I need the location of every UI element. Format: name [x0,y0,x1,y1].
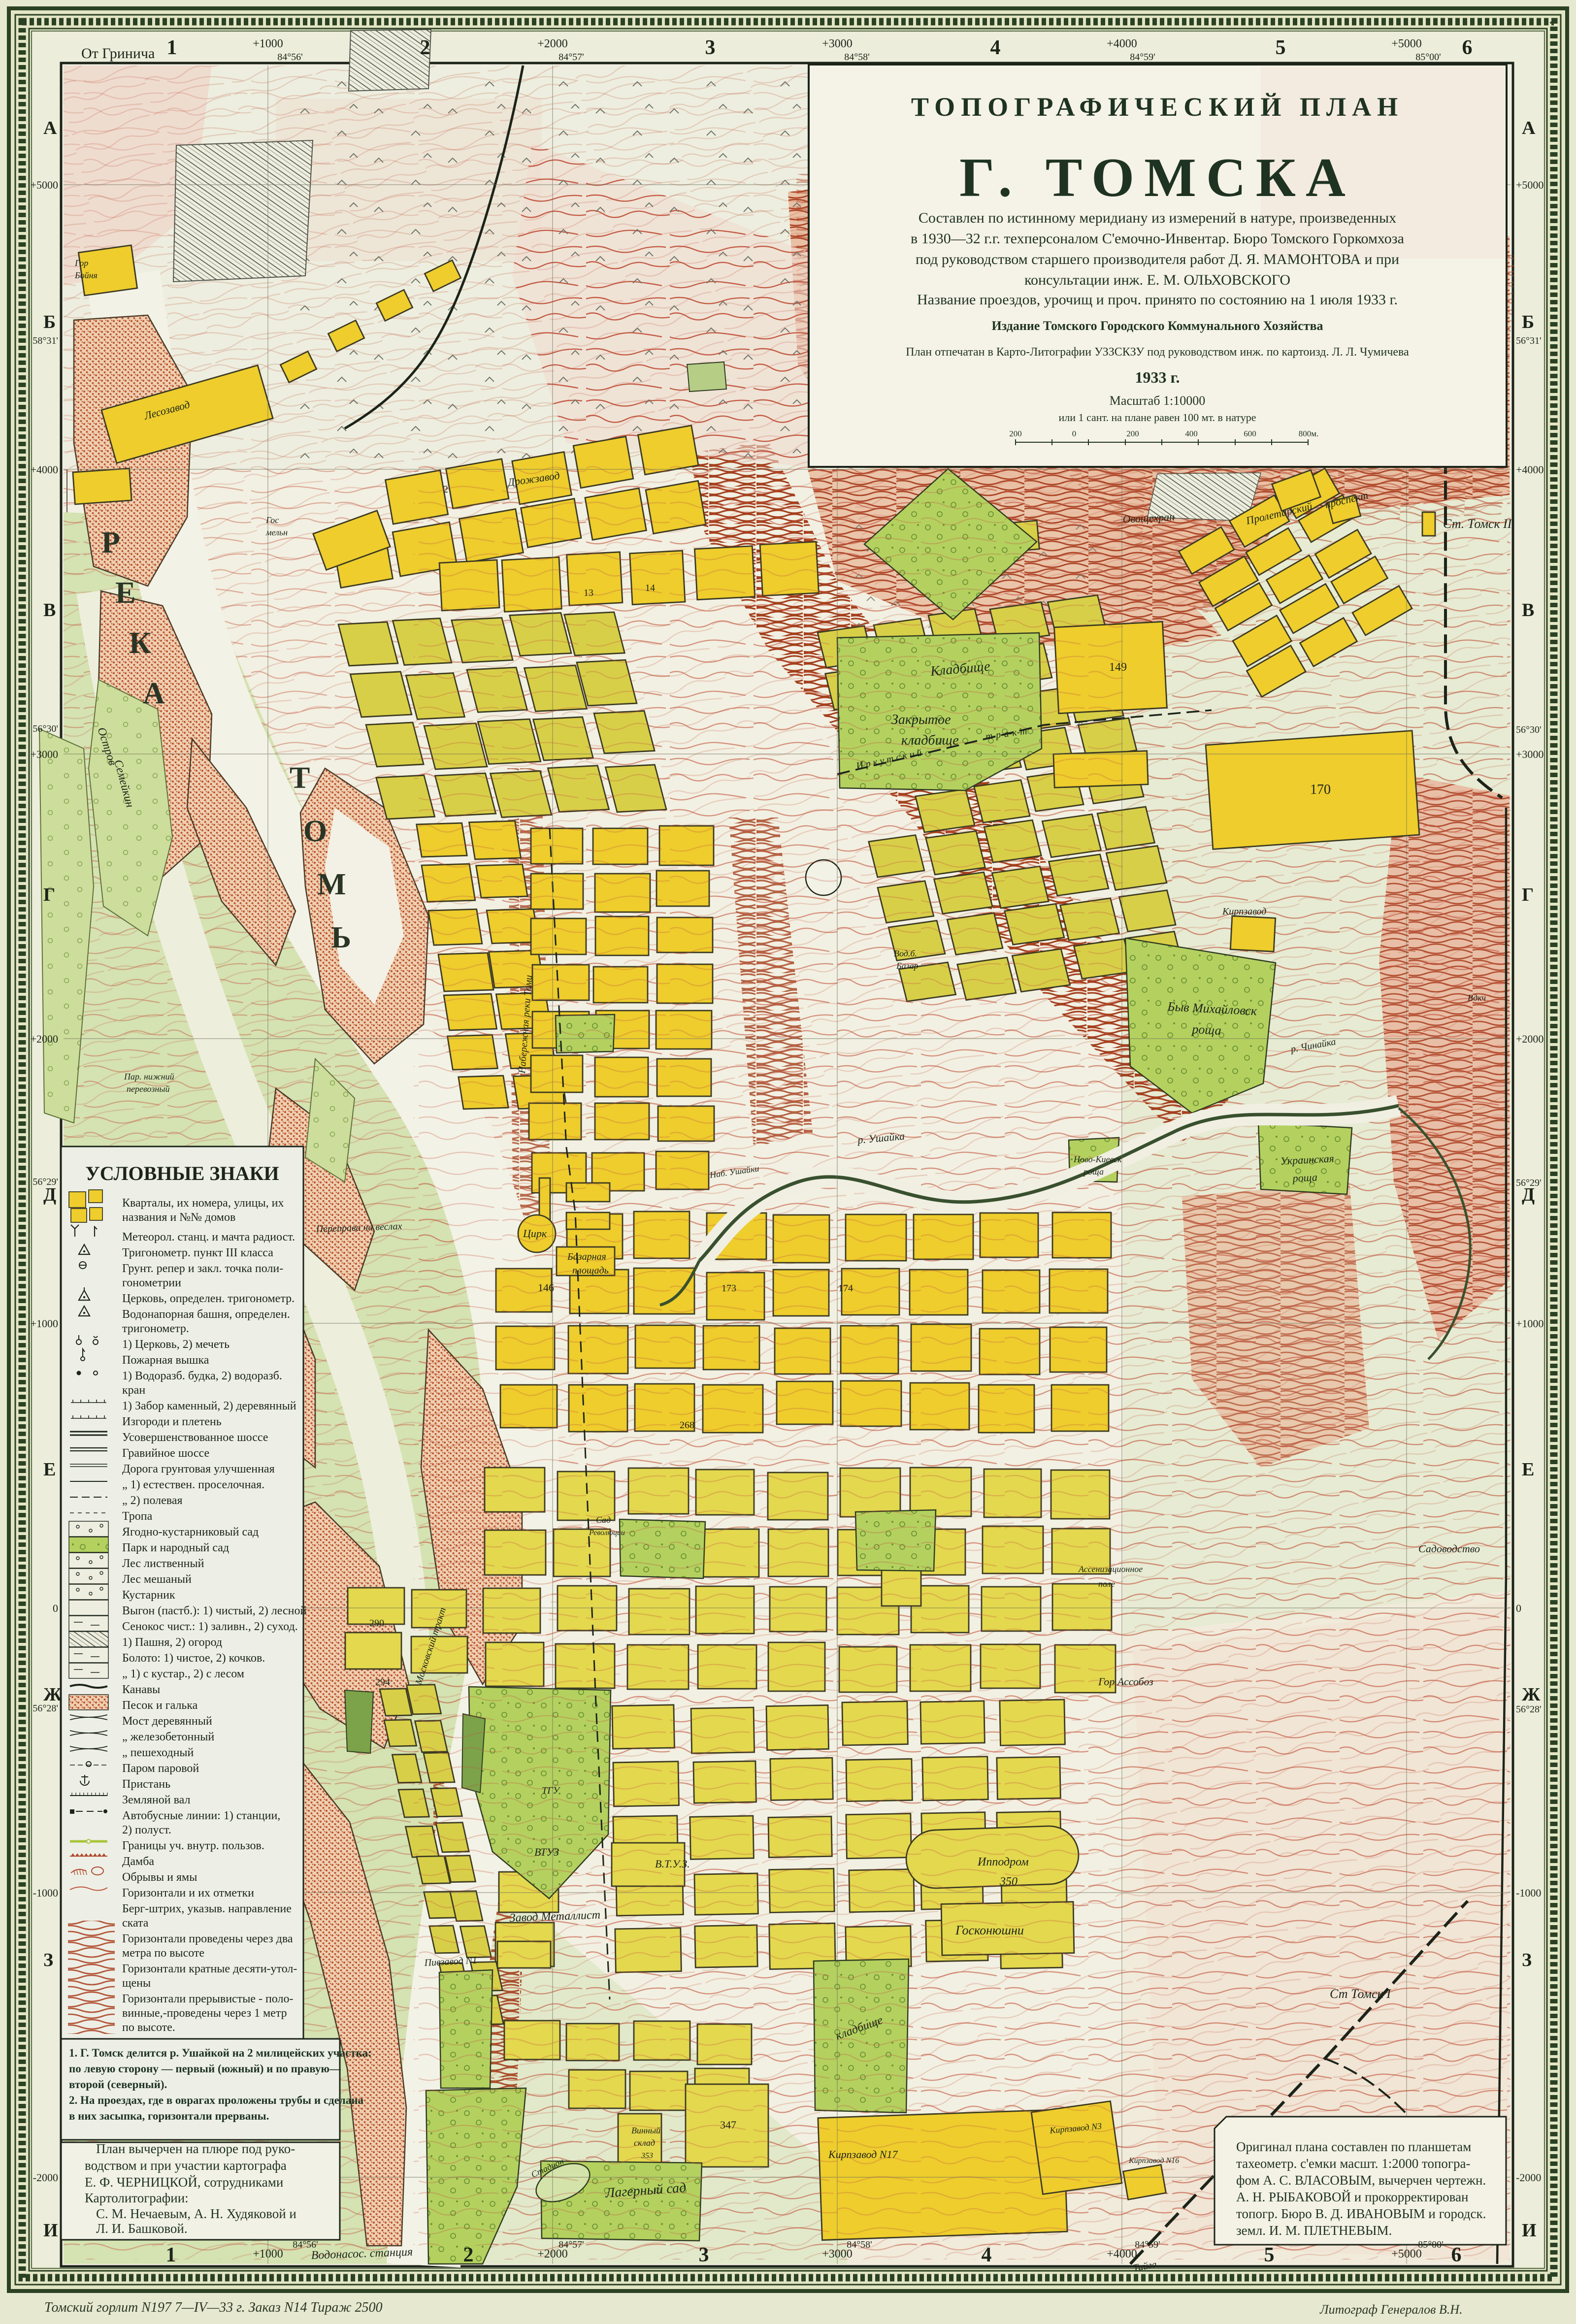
svg-text:Кирпзавод N16: Кирпзавод N16 [1128,2157,1179,2165]
svg-text:Дорога грунтовая улучшенная: Дорога грунтовая улучшенная [122,1463,275,1475]
svg-text:Сад: Сад [596,1515,611,1525]
svg-text:+2000: +2000 [1516,1033,1543,1045]
svg-text:В: В [43,600,56,621]
svg-text:+1000: +1000 [1516,1317,1543,1330]
svg-text:+5000: +5000 [31,179,58,191]
svg-text:58°31': 58°31' [33,335,58,346]
svg-text:400: 400 [1185,429,1198,438]
svg-text:в них засыпка, горизонтали пре: в них засыпка, горизонтали прерваны. [69,2110,269,2122]
svg-text:склад: склад [634,2138,655,2148]
svg-text:Границы уч. внутр. пользов.: Границы уч. внутр. пользов. [122,1839,264,1852]
svg-text:13: 13 [584,588,593,598]
svg-text:Горизонтали проведены через дв: Горизонтали проведены через два [122,1932,293,1945]
svg-text:по высоте.: по высоте. [122,2021,175,2034]
svg-text:Кварталы, их номера, улицы, их: Кварталы, их номера, улицы, их [122,1197,284,1210]
svg-text:84°57': 84°57' [558,52,584,63]
svg-text:Б: Б [43,312,56,332]
svg-text:56°31': 56°31' [1516,335,1542,346]
svg-text:М: М [317,868,346,901]
svg-text:ВТУЗ: ВТУЗ [534,1846,559,1858]
svg-text:Издание Томского Городского Ко: Издание Томского Городского Коммунальног… [991,319,1323,333]
svg-text:С. М. Нечаевым, А. Н. Худяково: С. М. Нечаевым, А. Н. Худяковой и [96,2206,296,2221]
svg-text:Автобусные линии: 1) станции,: Автобусные линии: 1) станции, [122,1809,280,1822]
svg-text:И: И [43,2220,58,2241]
svg-text:Лес лиственный: Лес лиственный [122,1557,204,1570]
svg-text:Сенокос чист.: 1) заливн., 2): Сенокос чист.: 1) заливн., 2) суход. [122,1620,298,1633]
svg-text:Кирпзавод: Кирпзавод [1222,906,1266,917]
svg-text:винные,-проведены через 1 метр: винные,-проведены через 1 метр [122,2007,287,2020]
svg-text:1933 г.: 1933 г. [1135,368,1180,386]
svg-text:Л. И. Башковой.: Л. И. Башковой. [96,2221,188,2236]
svg-text:Г: Г [1522,884,1534,905]
svg-text:тахеометр. с'емки масшт. 1:2: тахеометр. с'емки масшт. 1:2000 топогра- [1236,2156,1470,2171]
svg-text:роща: роща [1191,1022,1222,1038]
svg-text:К: К [129,626,151,660]
svg-text:А: А [43,118,57,138]
svg-text:Цирк: Цирк [523,1227,547,1240]
svg-text:„ 2) полевая: „ 2) полевая [122,1494,183,1507]
svg-text:Пар. нижний: Пар. нижний [124,1072,174,1081]
svg-text:1) Церковь, 2) мечеть: 1) Церковь, 2) мечеть [122,1338,230,1351]
svg-text:Ж: Ж [43,1684,62,1705]
svg-text:Кирпзавод N17: Кирпзавод N17 [828,2148,898,2160]
svg-text:Горизонтали кратные десяти-уто: Горизонтали кратные десяти-утол- [122,1963,297,1975]
svg-text:Гравийное шоссе: Гравийное шоссе [122,1447,209,1460]
svg-text:56°30': 56°30' [1516,724,1542,735]
svg-text:4: 4 [982,2244,992,2266]
svg-text:План отпечатан в Карто-Литогра: План отпечатан в Карто-Литографии УЗЗСКЗ… [906,346,1409,359]
svg-text:И: И [1522,2220,1537,2241]
svg-text:84°58': 84°58' [844,52,870,63]
svg-text:Вод.б.: Вод.б. [894,949,917,958]
svg-text:5: 5 [1264,2244,1275,2266]
svg-text:+4000: +4000 [1516,463,1543,476]
svg-text:Изгороди и плетень: Изгороди и плетень [122,1415,222,1428]
svg-text:350: 350 [999,1875,1018,1888]
svg-text:800м.: 800м. [1299,429,1319,438]
svg-text:Тригонометр. пункт III класса: Тригонометр. пункт III класса [122,1246,273,1259]
svg-text:+3000: +3000 [1516,748,1543,760]
svg-text:З: З [1522,1950,1532,1970]
svg-text:Е. Ф. ЧЕРНИЦКОЙ, сотрудниками: Е. Ф. ЧЕРНИЦКОЙ, сотрудниками [85,2175,283,2190]
svg-text:Ж: Ж [1522,1684,1541,1705]
svg-text:или 1 сант. на плане равен 100: или 1 сант. на плане равен 100 мт. в нат… [1058,411,1256,424]
svg-text:+4000: +4000 [1107,37,1137,50]
svg-text:Б: Б [1522,312,1534,332]
svg-text:УСЛОВНЫЕ ЗНАКИ: УСЛОВНЫЕ ЗНАКИ [85,1162,279,1184]
svg-text:+1000: +1000 [31,1317,58,1330]
svg-text:Ст Томск I: Ст Томск I [1330,1987,1391,2001]
svg-text:Составлен по истинному меридиа: Составлен по истинному меридиану из изме… [919,210,1396,226]
svg-text:85°00': 85°00' [1418,2239,1444,2250]
svg-text:по левую сторону — первый (южн: по левую сторону — первый (южный) и по п… [69,2062,341,2075]
svg-text:„ 1) с кустар., 2) с лесом: „ 1) с кустар., 2) с лесом [122,1668,244,1680]
svg-text:В: В [1522,600,1534,621]
svg-text:Гос: Гос [265,515,279,525]
svg-text:Лес мешаный: Лес мешаный [122,1573,192,1586]
svg-text:Т: Т [290,761,310,795]
svg-text:Усовершенствованное шоссе: Усовершенствованное шоссе [122,1431,268,1444]
svg-text:+5000: +5000 [1391,2248,1422,2260]
svg-text:84°59': 84°59' [1135,2239,1160,2250]
svg-text:А: А [1522,118,1536,138]
svg-text:Обрывы и ямы: Обрывы и ямы [122,1871,197,1884]
svg-text:Оригинал плана составлен по пл: Оригинал плана составлен по планшетам [1236,2139,1471,2154]
svg-text:Садоводство: Садоводство [1418,1542,1480,1555]
svg-text:600: 600 [1244,429,1256,438]
svg-text:14: 14 [645,583,655,593]
svg-text:1) Водоразб. будка, 2) водораз: 1) Водоразб. будка, 2) водоразб. [122,1370,282,1382]
svg-text:„ железобетонный: „ железобетонный [122,1731,214,1743]
svg-text:Революции: Революции [589,1529,625,1537]
svg-text:Ст. Томск II: Ст. Томск II [1443,517,1512,531]
svg-text:146: 146 [538,1281,554,1294]
svg-text:Кустарник: Кустарник [122,1589,175,1602]
svg-text:-2000: -2000 [1516,2171,1541,2184]
svg-text:+2000: +2000 [31,1033,58,1045]
svg-text:2: 2 [443,484,448,495]
svg-text:-2000: -2000 [33,2171,58,2184]
svg-text:роща: роща [1083,1167,1104,1177]
svg-text:Томский горлит N197 7—IV—3: Томский горлит N197 7—IV—33 г. Заказ N14… [44,2300,382,2315]
svg-text:268: 268 [680,1420,694,1431]
svg-text:56°29': 56°29' [1516,1178,1542,1188]
svg-text:347: 347 [720,2119,736,2131]
svg-text:Парк и народный сад: Парк и народный сад [122,1541,229,1554]
svg-text:А: А [143,677,165,710]
svg-text:+4000: +4000 [1107,2248,1137,2260]
svg-text:О: О [303,815,327,848]
svg-text:Метеорол. станц. и мачта радио: Метеорол. станц. и мачта радиост. [122,1231,295,1244]
svg-text:в 1930—32 г.г. техперсоналом С: в 1930—32 г.г. техперсоналом С'емочно-Ин… [911,230,1404,247]
svg-text:149: 149 [1109,661,1127,674]
svg-text:Берг-штрих, указыв. направлени: Берг-штрих, указыв. направление [122,1902,292,1915]
svg-text:Горизонтали и их отметки: Горизонтали и их отметки [122,1887,254,1899]
svg-text:топогр. Бюро В. Д. ИВАНОВЫМ и: топогр. Бюро В. Д. ИВАНОВЫМ и городск. [1236,2206,1486,2221]
svg-text:0: 0 [1072,429,1077,438]
svg-text:84°58': 84°58' [847,2239,872,2250]
svg-text:тригонометр.: тригонометр. [122,1322,189,1335]
svg-text:Д: Д [43,1184,56,1205]
svg-text:гонометрии: гонометрии [122,1277,181,1289]
svg-text:1) Пашня, 2) огород: 1) Пашня, 2) огород [122,1636,222,1649]
svg-text:84°57': 84°57' [558,2239,584,2250]
svg-text:Е: Е [115,576,135,610]
svg-text:Ипподром: Ипподром [977,1856,1029,1868]
svg-text:Тропа: Тропа [122,1510,153,1523]
svg-text:План вычерчен на плюре под рук: План вычерчен на плюре под руко- [96,2141,295,2156]
svg-text:площадь: площадь [572,1265,609,1276]
svg-text:+4000: +4000 [31,463,58,476]
svg-text:353: 353 [641,2152,653,2160]
svg-text:Е: Е [1522,1459,1534,1480]
svg-text:Паром паровой: Паром паровой [122,1762,199,1775]
svg-text:+2000: +2000 [537,37,568,50]
svg-text:84°59': 84°59' [1130,52,1155,63]
svg-text:85°00': 85°00' [1415,52,1441,63]
svg-text:Канавы: Канавы [122,1683,160,1696]
svg-text:Грунт. репер и закл. точка пол: Грунт. репер и закл. точка поли- [122,1262,283,1275]
svg-text:-1000: -1000 [33,1887,58,1899]
svg-text:„ пешеходный: „ пешеходный [122,1746,194,1759]
svg-text:1: 1 [166,2244,176,2266]
svg-text:2: 2 [463,2244,474,2266]
svg-text:0: 0 [1516,1602,1521,1614]
svg-text:кран: кран [122,1384,145,1397]
svg-text:Пристань: Пристань [122,1778,170,1791]
svg-text:земл. И. М. ПЛЕТНЕВЫМ.: земл. И. М. ПЛЕТНЕВЫМ. [1236,2223,1392,2238]
svg-text:+3000: +3000 [822,37,853,50]
svg-text:1. Г. Томск делится р. Ушайкой: 1. Г. Томск делится р. Ушайкой на 2 мили… [69,2047,372,2059]
svg-text:второй (северный).: второй (северный). [69,2078,167,2091]
svg-text:1: 1 [167,36,177,59]
svg-text:6: 6 [1451,2244,1462,2266]
svg-text:4: 4 [990,36,1001,59]
svg-text:поле: поле [1098,1579,1115,1589]
svg-text:Болото: 1) чистое, 2) кочков.: Болото: 1) чистое, 2) кочков. [122,1652,265,1665]
svg-text:Церковь, определен. тригономет: Церковь, определен. тригонометр. [122,1292,295,1305]
svg-text:-1000: -1000 [1516,1887,1541,1899]
svg-text:2. На проездах, где в оврагах: 2. На проездах, где в оврагах проложены … [69,2094,364,2106]
svg-text:От Гринича: От Гринича [81,45,155,62]
svg-text:Базарная: Базарная [567,1251,606,1262]
svg-text:водством и при участии картогр: водством и при участии картографа [85,2158,287,2173]
svg-text:ТГУ: ТГУ [542,1785,561,1796]
svg-text:З: З [43,1950,53,1970]
svg-text:174: 174 [838,1283,853,1294]
svg-text:Ягодно-кустарниковый сад: Ягодно-кустарниковый сад [122,1526,259,1538]
svg-text:56°28': 56°28' [33,1703,58,1714]
svg-text:под руководством старшего прои: под руководством старшего производителя … [916,251,1399,267]
svg-text:Горизонтали прерывистые - поло: Горизонтали прерывистые - поло- [122,1993,293,2005]
svg-text:Ново-Киевск: Ново-Киевск [1073,1154,1122,1164]
svg-text:Гор Ассобоз: Гор Ассобоз [1098,1675,1153,1688]
svg-text:Пожарная вышка: Пожарная вышка [122,1354,209,1367]
svg-text:Закрытое: Закрытое [891,712,951,727]
svg-text:6: 6 [1462,36,1473,59]
svg-text:роща: роща [1291,1171,1317,1184]
svg-text:Ассенизационное: Ассенизационное [1078,1564,1143,1574]
svg-text:„ 1) естествен. проселочная.: „ 1) естествен. проселочная. [122,1478,264,1491]
svg-text:Картолитографии:: Картолитографии: [85,2191,189,2205]
svg-text:200: 200 [1126,429,1139,438]
svg-text:56°28': 56°28' [1516,1704,1542,1715]
svg-text:0: 0 [53,1602,58,1614]
svg-text:170: 170 [1310,782,1331,797]
svg-text:В.Т.У.З.: В.Т.У.З. [655,1858,690,1870]
svg-text:Гор: Гор [74,258,88,268]
svg-text:2: 2 [420,36,430,59]
svg-text:84°56': 84°56' [277,52,303,63]
svg-text:Масштаб 1:10000: Масштаб 1:10000 [1110,393,1205,408]
svg-text:2) полуст.: 2) полуст. [122,1824,171,1836]
svg-text:173: 173 [722,1283,736,1294]
svg-text:5: 5 [1276,36,1286,59]
svg-text:3: 3 [705,36,716,59]
svg-text:мельн: мельн [265,527,288,537]
svg-text:1) Забор каменный, 2) деревянн: 1) Забор каменный, 2) деревянный [122,1400,296,1412]
svg-text:щены: щены [122,1977,151,1990]
svg-text:Г. ТОМСКА: Г. ТОМСКА [959,147,1355,208]
svg-text:Песок и галька: Песок и галька [122,1699,198,1712]
svg-text:+1000: +1000 [253,37,283,50]
svg-text:Вдкч: Вдкч [1468,993,1486,1003]
svg-text:+5000: +5000 [1391,37,1422,50]
svg-text:Ь: Ь [331,921,351,954]
svg-text:фом А. С. ВЛАСОВЫМ, вычерчен: фом А. С. ВЛАСОВЫМ, вычерчен чертежн. [1236,2173,1486,2188]
svg-text:Дамба: Дамба [122,1855,154,1868]
svg-text:Земляной вал: Земляной вал [122,1794,190,1806]
svg-text:290: 290 [369,1618,384,1629]
svg-text:ската: ската [122,1917,149,1930]
svg-text:Винный: Винный [631,2126,660,2135]
svg-text:56°30': 56°30' [33,723,58,734]
svg-text:Название проездов, урочищ и пр: Название проездов, урочищ и проч. принят… [917,292,1398,308]
svg-text:Литограф Генералов В.Н.: Литограф Генералов В.Н. [1319,2302,1463,2317]
svg-text:+3000: +3000 [31,748,58,760]
svg-text:ТОПОГРАФИЧЕСКИЙ ПЛАН: ТОПОГРАФИЧЕСКИЙ ПЛАН [911,92,1404,122]
svg-text:Базар: Базар [896,961,919,971]
svg-text:Госконюшни: Госконюшни [955,1923,1024,1937]
svg-text:метра по высоте: метра по высоте [122,1947,204,1960]
svg-text:перевозный: перевозный [127,1084,169,1094]
svg-text:+1000: +1000 [253,2248,283,2260]
svg-text:200: 200 [1009,429,1022,438]
svg-text:Мост деревянный: Мост деревянный [122,1715,212,1728]
svg-text:названия и №№ домов: названия и №№ домов [122,1211,235,1224]
svg-text:+5000: +5000 [1516,179,1543,191]
svg-text:84°56': 84°56' [293,2239,318,2250]
svg-text:Г: Г [43,884,55,905]
svg-text:294: 294 [375,1677,390,1688]
svg-text:Р: Р [101,526,120,559]
svg-text:Бойня: Бойня [74,270,98,280]
svg-text:Е: Е [43,1459,56,1480]
svg-text:А. Н. РЫБАКОВОЙ и прокорре: А. Н. РЫБАКОВОЙ и прокорректирован [1236,2190,1469,2204]
svg-text:56°29': 56°29' [33,1177,58,1187]
svg-text:кладбище: кладбище [901,733,959,748]
svg-text:Выгон (пастб.): 1) чистый, 2): Выгон (пастб.): 1) чистый, 2) лесной [122,1604,306,1617]
svg-text:консультации инж. Е. М. ОЛЬХОВ: консультации инж. Е. М. ОЛЬХОВСКОГО [1024,272,1290,288]
svg-text:3: 3 [699,2244,709,2266]
svg-text:Водонапорная башня, определен.: Водонапорная башня, определен. [122,1308,290,1321]
